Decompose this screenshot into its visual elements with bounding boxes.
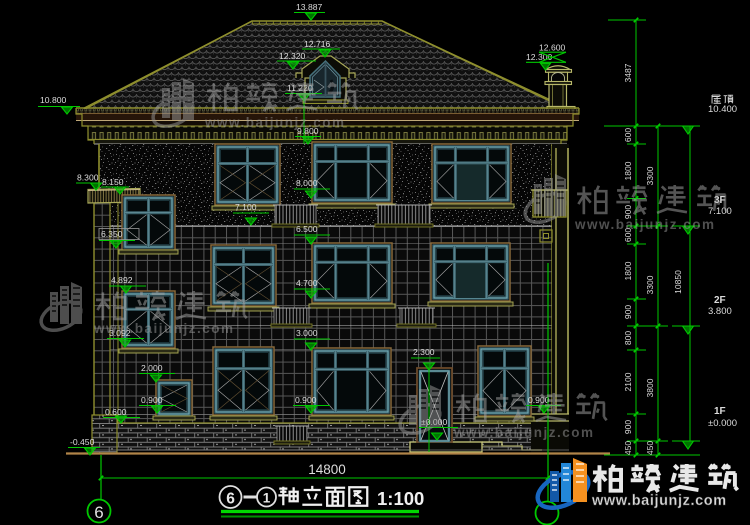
svg-text:6: 6 bbox=[94, 503, 103, 522]
svg-text:1:100: 1:100 bbox=[377, 488, 424, 509]
svg-text:3.800: 3.800 bbox=[708, 306, 732, 317]
svg-text:4.700: 4.700 bbox=[296, 278, 318, 288]
svg-text:3800: 3800 bbox=[645, 378, 655, 397]
svg-text:3487: 3487 bbox=[623, 63, 633, 82]
svg-text:6.500: 6.500 bbox=[296, 224, 318, 234]
svg-text:8.300: 8.300 bbox=[77, 173, 99, 183]
svg-text:12.716: 12.716 bbox=[304, 39, 331, 49]
svg-text:800: 800 bbox=[623, 331, 633, 345]
svg-text:0.900: 0.900 bbox=[528, 395, 550, 405]
svg-text:2100: 2100 bbox=[623, 372, 633, 391]
svg-text:450: 450 bbox=[623, 441, 633, 455]
svg-text:www.baijunjz.com: www.baijunjz.com bbox=[453, 425, 595, 440]
svg-text:1800: 1800 bbox=[623, 261, 633, 280]
svg-text:3300: 3300 bbox=[645, 166, 655, 185]
svg-text:1F: 1F bbox=[714, 406, 726, 417]
svg-text:900: 900 bbox=[623, 305, 633, 319]
svg-text:10.400: 10.400 bbox=[708, 104, 737, 115]
svg-text:2.300: 2.300 bbox=[413, 347, 435, 357]
svg-text:2.000: 2.000 bbox=[141, 363, 163, 373]
svg-text:12.600: 12.600 bbox=[539, 43, 566, 53]
svg-text:13.887: 13.887 bbox=[296, 2, 323, 12]
svg-text:±0.000: ±0.000 bbox=[708, 418, 737, 429]
svg-text:1: 1 bbox=[263, 491, 271, 506]
svg-text:0.900: 0.900 bbox=[141, 395, 163, 405]
svg-text:7.100: 7.100 bbox=[235, 202, 257, 212]
svg-text:8.000: 8.000 bbox=[296, 178, 318, 188]
svg-text:600: 600 bbox=[623, 128, 633, 142]
svg-text:14800: 14800 bbox=[308, 462, 346, 477]
svg-text:2F: 2F bbox=[714, 295, 726, 306]
svg-text:1800: 1800 bbox=[623, 161, 633, 180]
svg-text:6.350: 6.350 bbox=[101, 229, 123, 239]
svg-text:900: 900 bbox=[623, 420, 633, 434]
svg-text:3300: 3300 bbox=[645, 275, 655, 294]
svg-text:www.baijunjz.com: www.baijunjz.com bbox=[93, 321, 235, 336]
svg-text:www.baijunjz.com: www.baijunjz.com bbox=[204, 115, 346, 130]
svg-text:-0.450: -0.450 bbox=[70, 437, 95, 447]
svg-text:10.800: 10.800 bbox=[40, 95, 67, 105]
svg-text:4.892: 4.892 bbox=[111, 275, 133, 285]
svg-text:12.300: 12.300 bbox=[526, 52, 553, 62]
svg-text:www.baijunjz.com: www.baijunjz.com bbox=[591, 493, 727, 509]
svg-text:10850: 10850 bbox=[673, 270, 683, 294]
svg-text:12.320: 12.320 bbox=[279, 51, 306, 61]
svg-text:3.000: 3.000 bbox=[296, 328, 318, 338]
svg-text:0.900: 0.900 bbox=[295, 395, 317, 405]
svg-text:8.150: 8.150 bbox=[102, 177, 124, 187]
svg-text:www.baijunjz.com: www.baijunjz.com bbox=[574, 217, 716, 232]
svg-text:6: 6 bbox=[226, 491, 235, 508]
svg-text:450: 450 bbox=[645, 441, 655, 455]
